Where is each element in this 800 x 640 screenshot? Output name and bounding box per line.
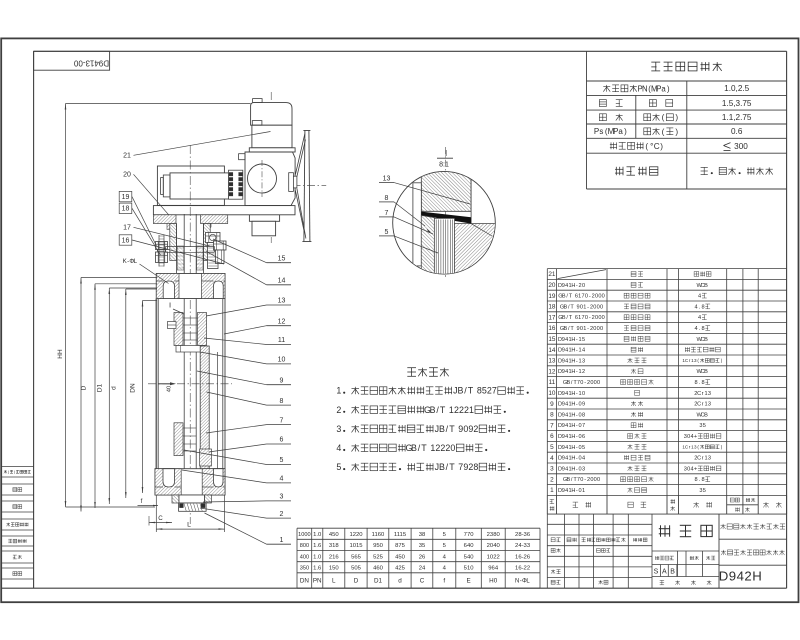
svg-text:5: 5 xyxy=(550,444,554,451)
svg-text:964: 964 xyxy=(488,566,499,572)
svg-text:0: 0 xyxy=(580,380,583,386)
svg-text:T: T xyxy=(569,294,573,300)
svg-text:H: H xyxy=(571,423,575,429)
svg-text:-: - xyxy=(589,294,591,300)
svg-text:B: B xyxy=(704,412,708,418)
svg-text:6: 6 xyxy=(550,433,554,440)
svg-text:1022: 1022 xyxy=(487,554,500,560)
svg-text:7: 7 xyxy=(280,417,284,424)
svg-text:H: H xyxy=(571,337,575,343)
svg-text:): ) xyxy=(624,127,627,136)
svg-text:1.0: 1.0 xyxy=(313,532,322,538)
svg-text:H: H xyxy=(571,283,575,289)
svg-text:16-26: 16-26 xyxy=(515,554,531,560)
svg-text:I: I xyxy=(445,148,447,158)
svg-text:1: 1 xyxy=(582,488,585,494)
svg-text:B: B xyxy=(704,369,708,375)
svg-text:DN: DN xyxy=(130,383,137,393)
svg-text:C: C xyxy=(420,578,425,585)
svg-text:+: + xyxy=(694,466,697,472)
svg-text:800: 800 xyxy=(300,543,309,549)
svg-text:L: L xyxy=(526,579,530,585)
svg-text:-: - xyxy=(587,304,589,310)
svg-text:B: B xyxy=(564,304,568,310)
svg-text:26: 26 xyxy=(419,554,426,560)
svg-text:L: L xyxy=(134,258,138,265)
svg-text:1.5,3.75: 1.5,3.75 xyxy=(722,99,752,108)
svg-text:): ) xyxy=(675,127,678,136)
svg-text:T: T xyxy=(421,443,427,453)
svg-text:540: 540 xyxy=(464,554,475,560)
svg-text:4: 4 xyxy=(443,566,447,572)
svg-text:11: 11 xyxy=(549,379,556,386)
svg-text:N: N xyxy=(642,84,648,93)
svg-text:15: 15 xyxy=(548,336,556,343)
svg-text:4: 4 xyxy=(582,348,585,354)
svg-text:12: 12 xyxy=(278,318,286,325)
svg-text:4: 4 xyxy=(280,476,284,483)
svg-text:5: 5 xyxy=(443,543,447,549)
svg-text:28-36: 28-36 xyxy=(515,532,531,538)
svg-text:D1: D1 xyxy=(374,578,383,585)
svg-text:1: 1 xyxy=(583,326,586,332)
svg-text:C: C xyxy=(697,391,701,397)
svg-text:a: a xyxy=(661,84,666,93)
svg-text:B: B xyxy=(564,326,568,332)
svg-text:18: 18 xyxy=(122,206,130,213)
svg-text:4: 4 xyxy=(695,326,698,332)
svg-text:1.6: 1.6 xyxy=(313,566,322,572)
svg-text:0: 0 xyxy=(450,443,455,453)
svg-text:C: C xyxy=(654,142,660,151)
svg-text:18: 18 xyxy=(548,304,556,311)
svg-text:17: 17 xyxy=(123,225,131,232)
svg-text:DN: DN xyxy=(300,578,310,585)
svg-text:425: 425 xyxy=(395,566,406,572)
svg-text:2: 2 xyxy=(336,405,341,415)
svg-text:H: H xyxy=(571,456,575,462)
svg-text:770: 770 xyxy=(464,532,475,538)
svg-text:T: T xyxy=(468,386,474,396)
svg-text:0: 0 xyxy=(602,315,605,321)
svg-text:3: 3 xyxy=(708,402,711,408)
svg-text:0: 0 xyxy=(602,294,605,300)
svg-text:f: f xyxy=(141,498,143,505)
svg-text:38: 38 xyxy=(419,532,426,538)
svg-text:r: r xyxy=(702,402,704,408)
svg-text:(: ( xyxy=(662,127,665,136)
svg-text:14: 14 xyxy=(548,347,556,354)
svg-text:B: B xyxy=(458,386,464,396)
svg-text:E: E xyxy=(466,578,470,585)
svg-text:21: 21 xyxy=(548,271,556,278)
svg-text:216: 216 xyxy=(329,554,340,560)
svg-text:B: B xyxy=(439,424,445,434)
svg-text:1: 1 xyxy=(583,304,586,310)
svg-text:15: 15 xyxy=(278,255,286,262)
svg-text:2: 2 xyxy=(473,424,478,434)
svg-text:19: 19 xyxy=(122,194,130,201)
svg-text:): ) xyxy=(667,84,670,93)
svg-text:): ) xyxy=(660,142,663,151)
svg-text:1115: 1115 xyxy=(394,532,407,538)
svg-text:24: 24 xyxy=(419,566,426,572)
svg-text:4: 4 xyxy=(550,455,554,462)
svg-text:B: B xyxy=(439,462,445,472)
svg-text:B: B xyxy=(411,443,417,453)
svg-text:L: L xyxy=(332,578,336,585)
svg-text:HH: HH xyxy=(57,349,64,359)
svg-text:T: T xyxy=(449,424,455,434)
svg-text:7: 7 xyxy=(582,423,585,429)
svg-text:B: B xyxy=(670,569,675,576)
svg-text:): ) xyxy=(721,358,723,363)
svg-text:C: C xyxy=(158,515,163,522)
svg-text:13: 13 xyxy=(383,176,391,183)
svg-text:(: ( xyxy=(645,142,648,151)
svg-text:D9413-00: D9413-00 xyxy=(73,58,109,67)
svg-text:6: 6 xyxy=(582,434,585,440)
svg-text:H: H xyxy=(571,369,575,375)
svg-text:450: 450 xyxy=(329,532,340,538)
svg-text:4: 4 xyxy=(582,456,585,462)
svg-text:460: 460 xyxy=(373,566,384,572)
svg-text:1.1,2.75: 1.1,2.75 xyxy=(722,113,752,122)
svg-text:17: 17 xyxy=(548,314,556,321)
svg-text:s: s xyxy=(599,127,603,136)
svg-text:5: 5 xyxy=(443,532,447,538)
svg-text:H0: H0 xyxy=(489,578,498,585)
svg-text:1.0,2.5: 1.0,2.5 xyxy=(724,84,749,93)
svg-text:(: ( xyxy=(662,113,665,122)
svg-text:1.0: 1.0 xyxy=(313,554,322,560)
svg-text:8: 8 xyxy=(701,477,704,483)
svg-text:B: B xyxy=(562,315,566,321)
svg-text:2: 2 xyxy=(280,511,284,518)
svg-text:6: 6 xyxy=(280,437,284,444)
svg-text:4: 4 xyxy=(336,443,341,453)
svg-text:5: 5 xyxy=(703,423,706,429)
svg-text:3: 3 xyxy=(582,466,585,472)
svg-text:16-22: 16-22 xyxy=(515,566,530,572)
svg-text:-: - xyxy=(587,326,589,332)
svg-text:3: 3 xyxy=(336,424,341,434)
svg-text:7: 7 xyxy=(550,422,554,429)
svg-text:f: f xyxy=(443,578,445,585)
svg-text:525: 525 xyxy=(373,554,384,560)
svg-text:2: 2 xyxy=(550,476,554,483)
svg-text:a: a xyxy=(618,127,623,136)
svg-text:1: 1 xyxy=(280,537,284,544)
svg-text:0: 0 xyxy=(597,477,600,483)
svg-text:1: 1 xyxy=(336,386,341,396)
svg-text:C: C xyxy=(697,402,701,408)
svg-text:150: 150 xyxy=(329,566,340,572)
svg-text:8: 8 xyxy=(695,477,698,483)
svg-text:24-33: 24-33 xyxy=(515,543,531,549)
svg-text:3: 3 xyxy=(550,466,554,473)
svg-text:510: 510 xyxy=(464,566,475,572)
svg-text:I: I xyxy=(169,301,171,310)
svg-text:0: 0 xyxy=(585,294,588,300)
svg-text:-: - xyxy=(589,315,591,321)
svg-text:3: 3 xyxy=(582,358,585,364)
svg-text:D: D xyxy=(81,385,88,390)
svg-text:400: 400 xyxy=(300,554,309,560)
svg-text:1000: 1000 xyxy=(298,532,310,538)
svg-text:300: 300 xyxy=(734,142,748,151)
svg-text:318: 318 xyxy=(329,543,340,549)
svg-text:B: B xyxy=(562,294,566,300)
svg-text:950: 950 xyxy=(373,543,384,549)
svg-text:N: N xyxy=(515,579,519,585)
svg-text:H: H xyxy=(571,445,575,451)
svg-text:1015: 1015 xyxy=(349,543,363,549)
svg-text:T: T xyxy=(570,304,574,310)
svg-text:9: 9 xyxy=(582,402,585,408)
svg-text:B: B xyxy=(430,405,436,415)
svg-text:20: 20 xyxy=(123,172,131,179)
svg-text:4: 4 xyxy=(695,304,698,310)
svg-text:H: H xyxy=(571,488,575,494)
svg-text:640: 640 xyxy=(464,543,475,549)
svg-text:1: 1 xyxy=(469,405,474,415)
svg-text:7: 7 xyxy=(385,210,389,217)
svg-text:16: 16 xyxy=(122,237,130,244)
svg-text:9: 9 xyxy=(550,401,554,408)
svg-text:8: 8 xyxy=(385,195,389,202)
svg-text:5: 5 xyxy=(703,488,706,494)
svg-text:d: d xyxy=(111,386,118,390)
svg-text:C: C xyxy=(697,456,701,462)
svg-text:875: 875 xyxy=(395,543,406,549)
svg-text:(: ( xyxy=(697,445,699,450)
svg-text:13: 13 xyxy=(278,298,286,305)
svg-text:T: T xyxy=(449,462,455,472)
svg-text:H: H xyxy=(571,466,575,472)
svg-text:3: 3 xyxy=(708,456,711,462)
svg-text:r: r xyxy=(702,456,704,462)
svg-text:): ) xyxy=(14,470,15,474)
svg-text:0: 0 xyxy=(600,326,603,332)
svg-text:5: 5 xyxy=(385,229,389,236)
svg-text:21: 21 xyxy=(123,153,131,160)
svg-text:8: 8 xyxy=(582,412,585,418)
svg-text:0: 0 xyxy=(597,380,600,386)
svg-text:L: L xyxy=(187,522,191,529)
svg-text:T: T xyxy=(570,326,574,332)
svg-text:A: A xyxy=(662,569,667,576)
svg-text:8: 8 xyxy=(701,304,704,310)
svg-text:10: 10 xyxy=(548,390,556,397)
svg-text:H: H xyxy=(571,412,575,418)
svg-text:13: 13 xyxy=(548,358,556,365)
svg-text:2380: 2380 xyxy=(487,532,501,538)
svg-text:0: 0 xyxy=(580,477,583,483)
svg-text:1160: 1160 xyxy=(372,532,385,538)
svg-text:0.6: 0.6 xyxy=(731,127,743,136)
svg-text:40: 40 xyxy=(167,386,173,392)
svg-text:8: 8 xyxy=(473,462,478,472)
svg-text:4: 4 xyxy=(443,554,447,560)
svg-text:T: T xyxy=(440,405,446,415)
svg-text:5: 5 xyxy=(336,462,341,472)
svg-text:8: 8 xyxy=(280,398,284,405)
svg-text:5: 5 xyxy=(582,337,585,343)
svg-text:3: 3 xyxy=(280,494,284,501)
svg-text:2: 2 xyxy=(582,369,585,375)
svg-text:350: 350 xyxy=(300,566,309,572)
svg-text:19: 19 xyxy=(548,293,556,300)
svg-text:10: 10 xyxy=(278,357,286,364)
svg-text:9: 9 xyxy=(280,377,284,384)
svg-text:14: 14 xyxy=(278,278,286,285)
svg-text:2040: 2040 xyxy=(487,543,501,549)
svg-text:B: B xyxy=(704,337,708,343)
svg-text:8:1: 8:1 xyxy=(439,162,449,169)
svg-text:505: 505 xyxy=(351,566,362,572)
svg-text:5: 5 xyxy=(582,445,585,451)
svg-text:8: 8 xyxy=(701,380,704,386)
svg-text:4: 4 xyxy=(698,315,701,321)
svg-text:5: 5 xyxy=(280,457,284,464)
svg-text:565: 565 xyxy=(351,554,362,560)
svg-text:0: 0 xyxy=(582,391,585,397)
svg-text:(: ( xyxy=(8,470,10,474)
svg-text:H: H xyxy=(571,391,575,397)
svg-text:1.6: 1.6 xyxy=(313,543,322,549)
svg-text:3: 3 xyxy=(708,391,711,397)
svg-text:r: r xyxy=(702,391,704,397)
svg-text:S: S xyxy=(654,569,659,576)
svg-text:+: + xyxy=(694,434,697,440)
svg-text:16: 16 xyxy=(548,325,556,332)
svg-text:H: H xyxy=(571,402,575,408)
svg-text:d: d xyxy=(398,578,402,585)
svg-text:1: 1 xyxy=(550,487,554,494)
svg-text:0: 0 xyxy=(585,315,588,321)
svg-text:H: H xyxy=(571,358,575,364)
svg-text:8: 8 xyxy=(695,380,698,386)
svg-text:20: 20 xyxy=(548,282,556,289)
svg-text:7: 7 xyxy=(492,386,497,396)
svg-text:H: H xyxy=(571,434,575,440)
svg-text:8: 8 xyxy=(550,412,554,419)
svg-text:D1: D1 xyxy=(97,383,104,392)
svg-text:4: 4 xyxy=(698,294,701,300)
svg-text:1220: 1220 xyxy=(349,532,363,538)
svg-text:): ) xyxy=(721,445,723,450)
svg-text:12: 12 xyxy=(548,368,556,375)
svg-text:): ) xyxy=(675,113,678,122)
svg-text:D: D xyxy=(354,578,359,585)
svg-text:35: 35 xyxy=(419,543,426,549)
svg-text:B: B xyxy=(704,283,708,289)
svg-text:(: ( xyxy=(697,358,699,363)
svg-text:8: 8 xyxy=(701,326,704,332)
svg-text:D942H: D942H xyxy=(719,569,763,584)
svg-text:PN: PN xyxy=(313,578,322,585)
svg-text:T: T xyxy=(569,315,573,321)
svg-text:11: 11 xyxy=(278,337,285,344)
svg-text:0: 0 xyxy=(600,304,603,310)
svg-text:H: H xyxy=(571,348,575,354)
svg-text:0: 0 xyxy=(582,283,585,289)
svg-text:450: 450 xyxy=(395,554,406,560)
